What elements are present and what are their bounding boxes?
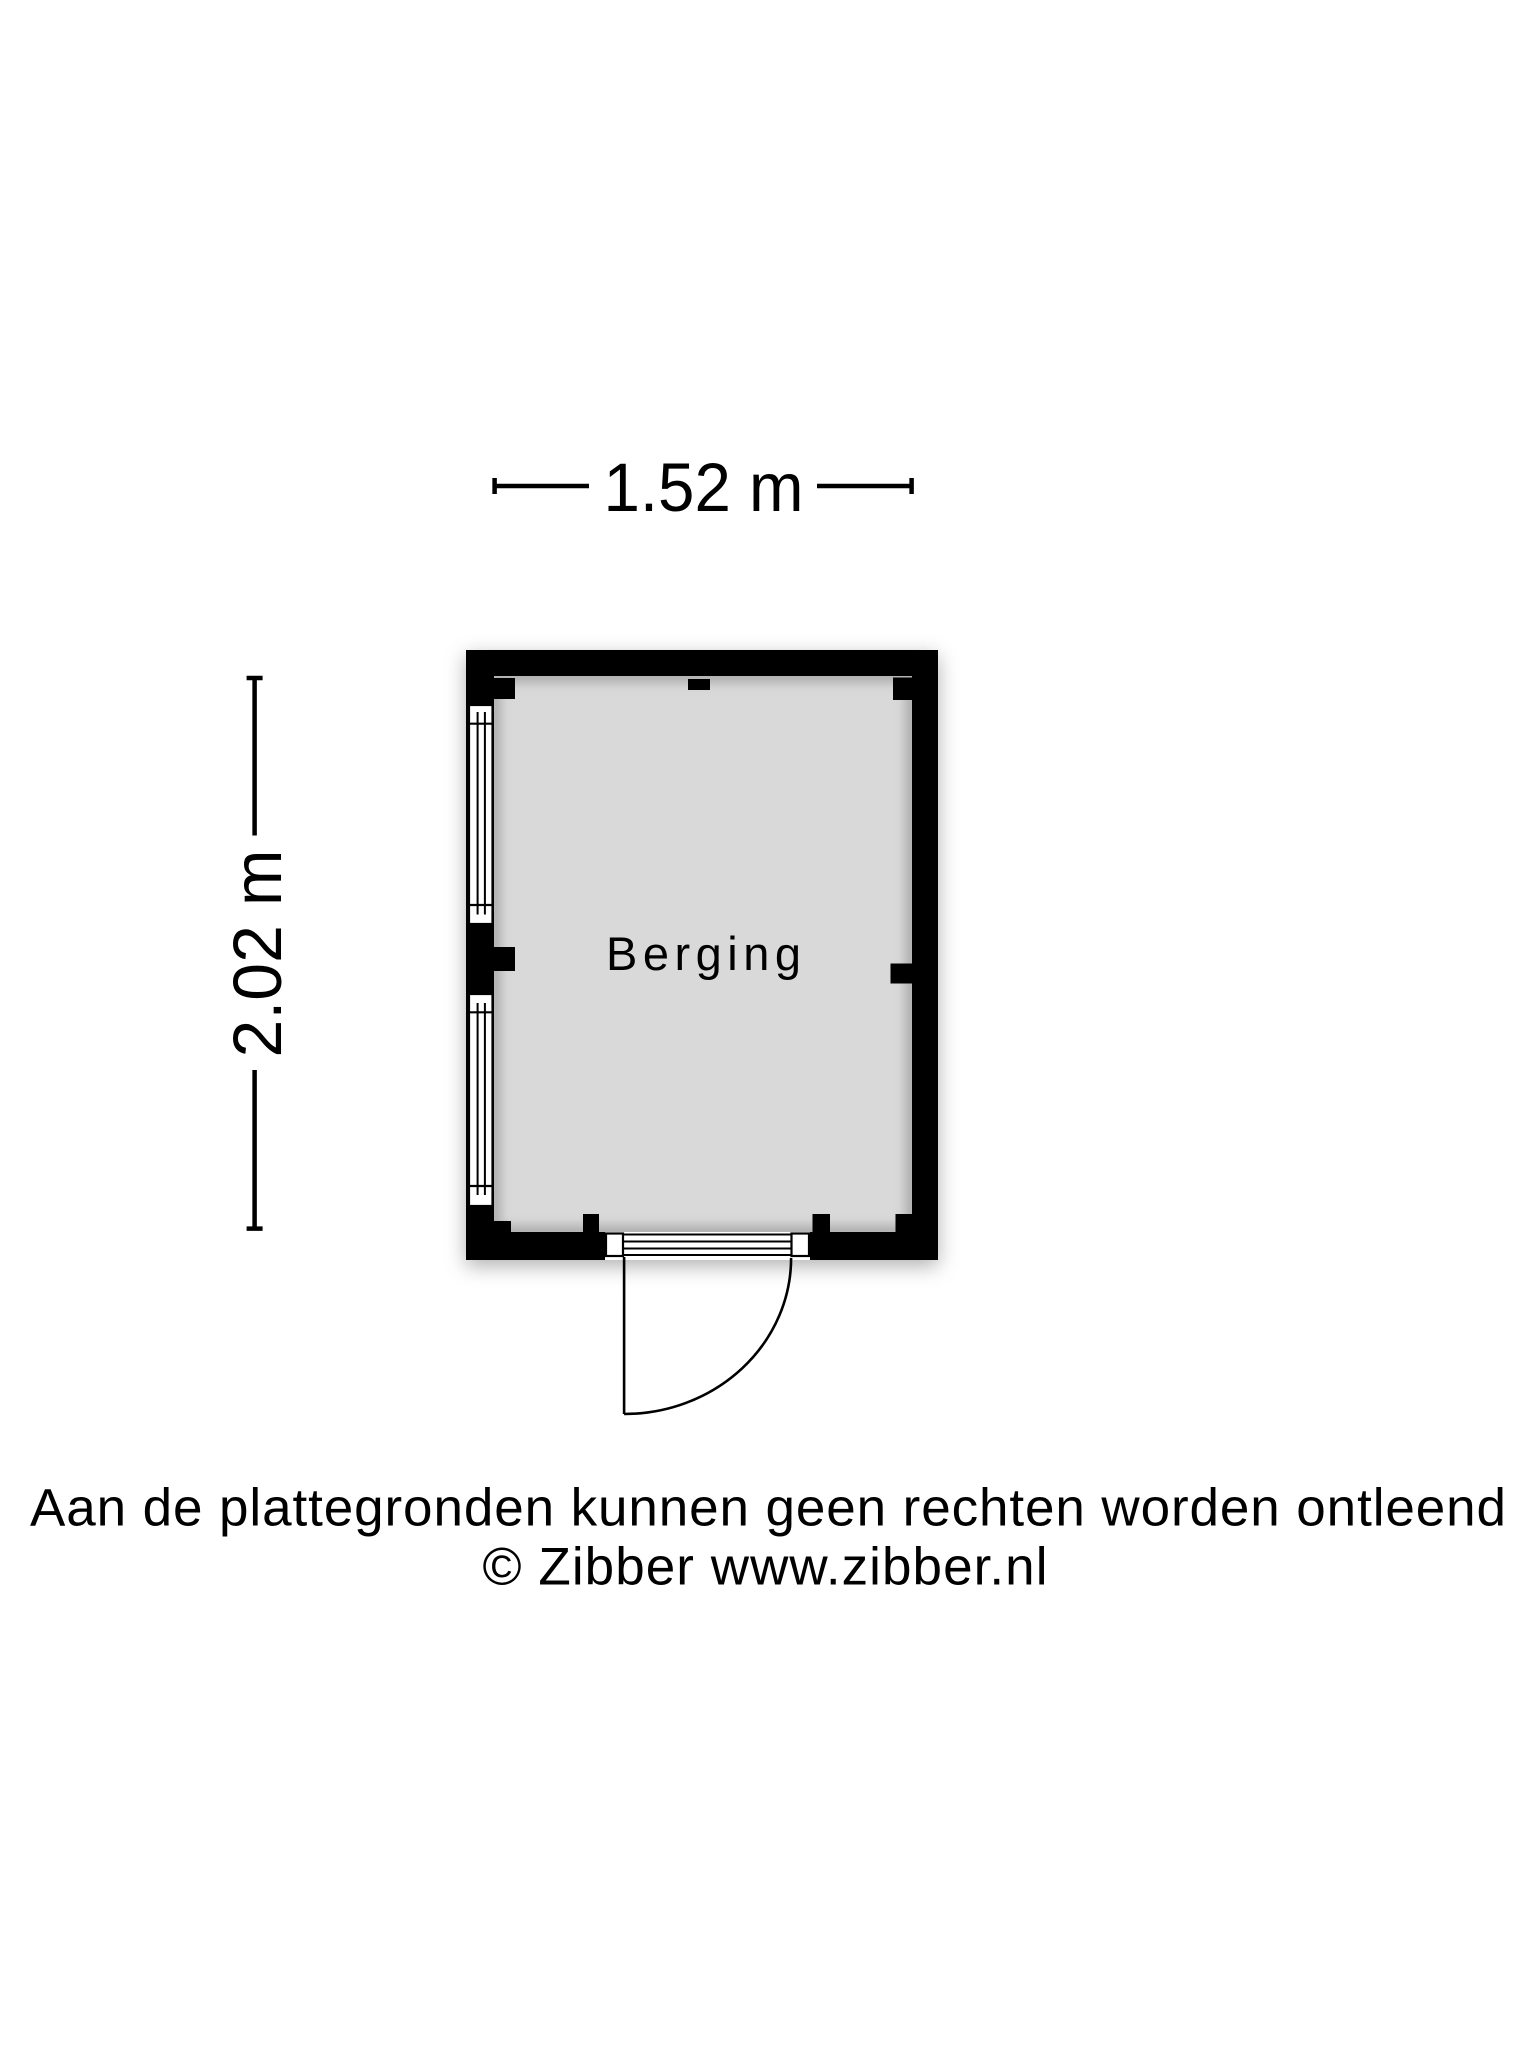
svg-text:1.52 m: 1.52 m <box>604 449 804 526</box>
svg-text:© Zibber www.zibber.nl: © Zibber www.zibber.nl <box>483 1538 1048 1597</box>
svg-text:Aan de plattegronden kunnen ge: Aan de plattegronden kunnen geen rechten… <box>30 1479 1506 1538</box>
svg-text:2.02 m: 2.02 m <box>219 850 296 1058</box>
